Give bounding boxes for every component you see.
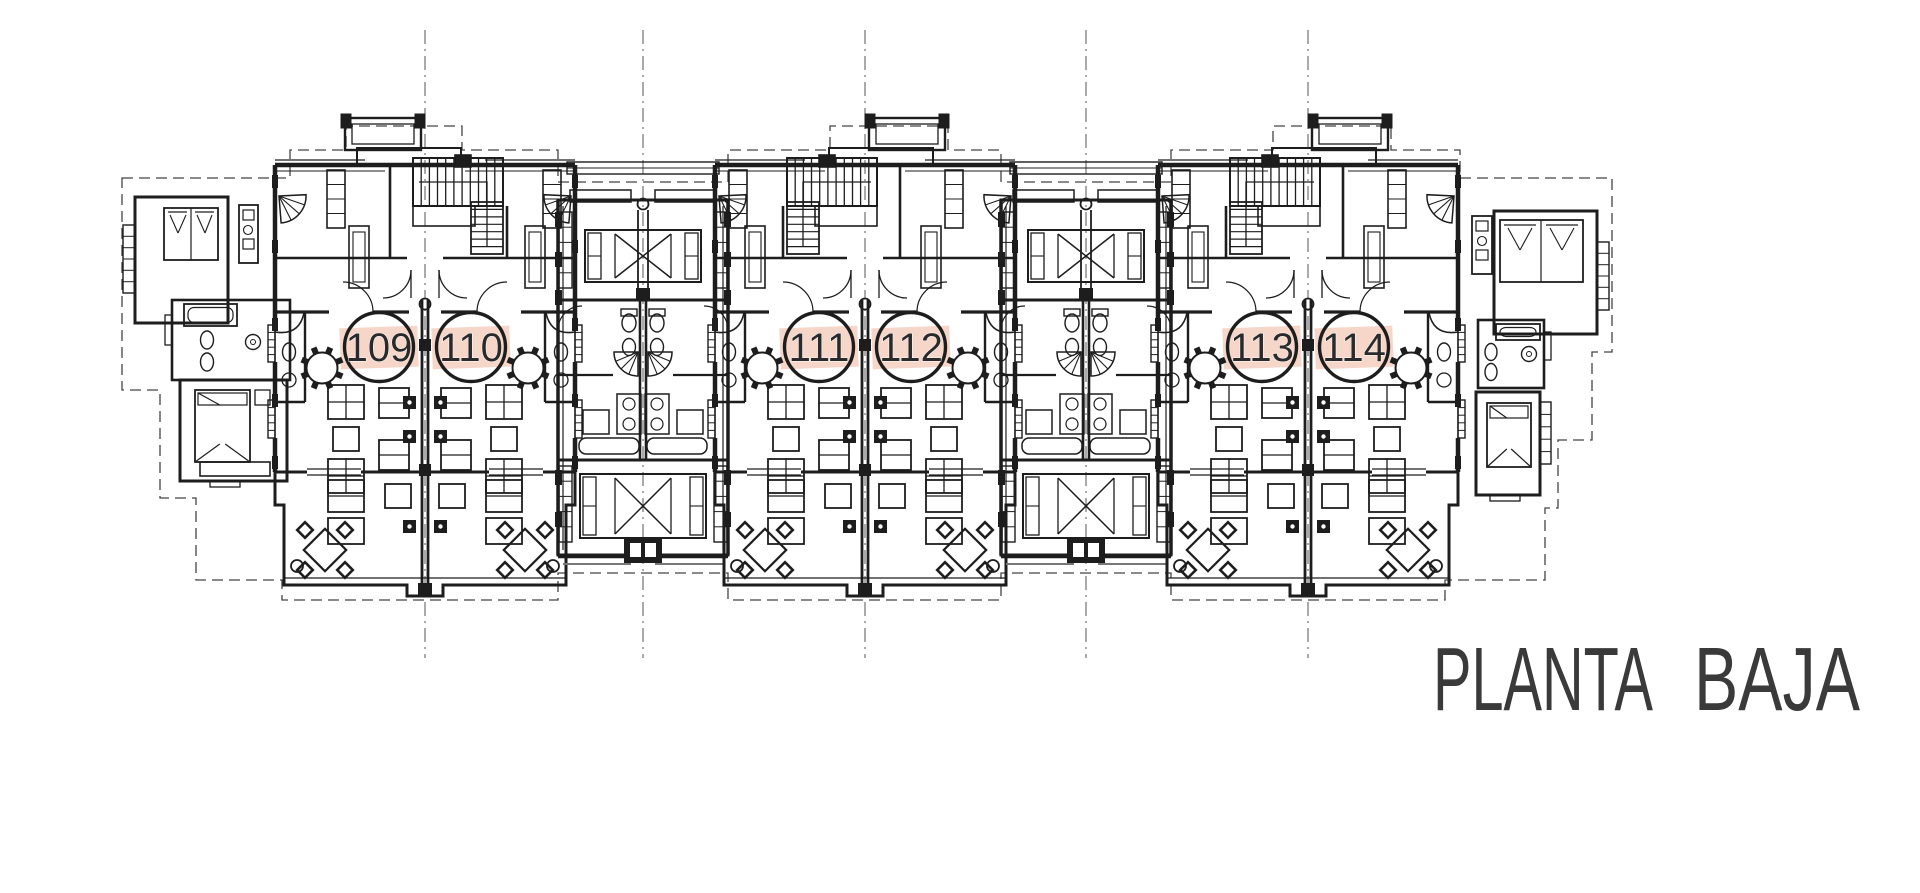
svg-text:PLANTA: PLANTA (1433, 630, 1653, 730)
svg-text:113: 113 (1230, 326, 1294, 370)
svg-text:112: 112 (879, 326, 943, 370)
svg-text:BAJA: BAJA (1694, 630, 1860, 730)
svg-text:114: 114 (1322, 326, 1386, 370)
svg-text:111: 111 (789, 326, 850, 370)
svg-text:109: 109 (346, 326, 413, 370)
svg-text:110: 110 (439, 326, 503, 370)
